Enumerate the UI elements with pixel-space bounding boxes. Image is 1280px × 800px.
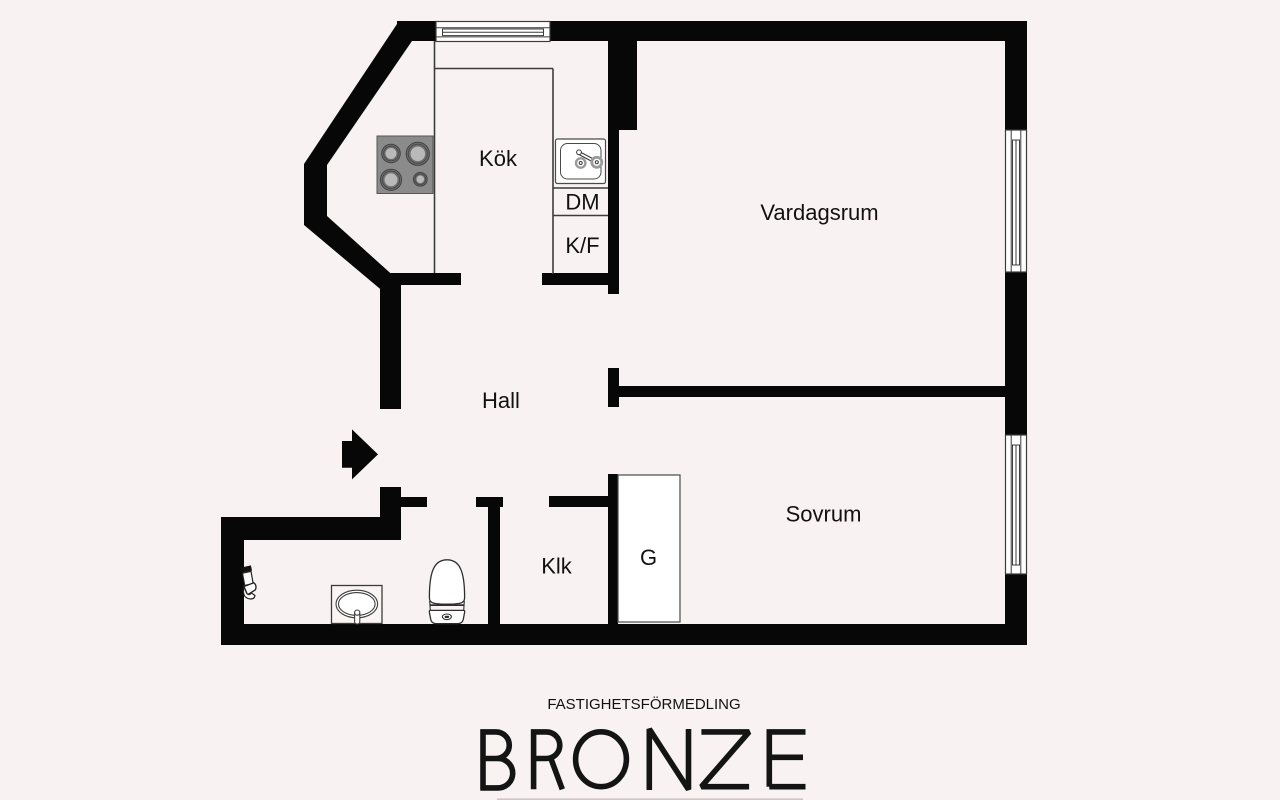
svg-text:FASTIGHETSFÖRMEDLING: FASTIGHETSFÖRMEDLING <box>547 695 740 713</box>
svg-text:G: G <box>640 545 657 570</box>
svg-text:Hall: Hall <box>482 388 520 413</box>
svg-text:K/F: K/F <box>565 233 599 258</box>
svg-text:Sovrum: Sovrum <box>786 502 862 527</box>
svg-text:DM: DM <box>565 190 599 215</box>
svg-text:Vardagsrum: Vardagsrum <box>760 200 878 225</box>
svg-text:Kök: Kök <box>479 146 518 171</box>
svg-text:Klk: Klk <box>541 554 573 579</box>
